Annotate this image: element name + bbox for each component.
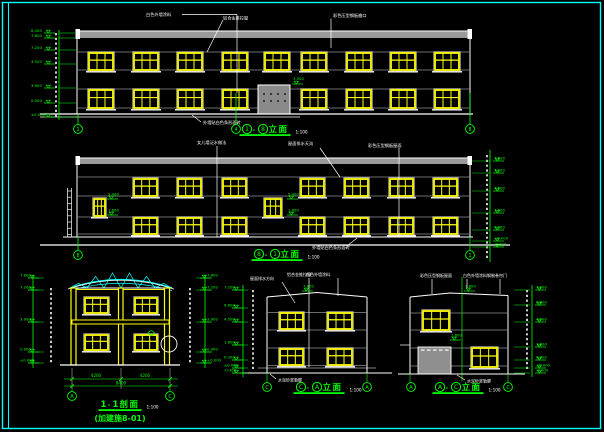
- window: [175, 89, 205, 111]
- door-leaf: [418, 347, 451, 374]
- level-flag: 7.200: [493, 168, 505, 173]
- callout-label: 白色外墙涂料: [306, 271, 330, 277]
- level-flag: 7.800: [464, 283, 476, 291]
- window-frame: [85, 298, 108, 313]
- grid-bubble-label: 8: [468, 127, 471, 133]
- door-slat-mark: [439, 350, 443, 351]
- level-flag: 6.600: [224, 303, 243, 308]
- callout-label: 铝合金推拉窗: [223, 15, 248, 22]
- note-leader: [270, 374, 276, 379]
- level-value: 1.800: [536, 342, 547, 347]
- window: [82, 334, 111, 353]
- level-flag: -0.300: [493, 242, 507, 247]
- window: [420, 310, 452, 333]
- door-slat-mark: [433, 350, 437, 351]
- door-leaf: [258, 85, 290, 114]
- grid-bubble: 8: [466, 125, 475, 134]
- roof-line: [410, 293, 508, 297]
- window-frame: [85, 335, 108, 350]
- level-triangle: [202, 287, 206, 290]
- callout-label: 屋面排水方向: [250, 275, 274, 281]
- roof-line: [267, 293, 367, 298]
- window: [86, 52, 116, 73]
- window: [131, 178, 160, 199]
- back-elevation-view: 5.4001.8005.4001.800女儿墙泛水做法屋面排水天沟彩色压型钢板屋…: [40, 139, 510, 262]
- level-triangle: [202, 319, 206, 322]
- level-value: 3.000: [293, 76, 304, 81]
- level-value: 3.900: [207, 317, 218, 322]
- level-triangle: [289, 196, 293, 199]
- window-frame: [265, 199, 281, 216]
- window-frame: [280, 349, 303, 365]
- level-flag: 4.500: [535, 317, 547, 322]
- window: [132, 334, 160, 353]
- level-flag: ±0.000: [20, 358, 39, 363]
- window-frame: [280, 313, 303, 329]
- level-triangle: [109, 212, 113, 215]
- title-char: 立: [323, 382, 332, 393]
- window-frame: [89, 53, 113, 70]
- grid-bubble: C: [166, 392, 175, 401]
- window-frame: [134, 90, 158, 108]
- window-frame: [434, 218, 457, 234]
- level-value: 1.800: [451, 332, 462, 337]
- level-flag: 4.500: [493, 186, 505, 191]
- level-triangle: [46, 100, 50, 103]
- column: [165, 288, 170, 365]
- callout-label: 白色外墙涂料: [146, 11, 172, 18]
- window-frame: [223, 53, 247, 70]
- level-triangle: [294, 81, 298, 84]
- title-scale: 1:100: [308, 255, 320, 260]
- level-triangle: [202, 360, 206, 363]
- level-flag: 3.000: [292, 76, 304, 84]
- window: [387, 178, 416, 199]
- title-underline: [294, 392, 345, 394]
- window: [342, 178, 371, 199]
- level-triangle: [452, 337, 456, 340]
- level-value: 7.800: [303, 283, 314, 288]
- view-title: C-A立面1:100: [294, 382, 362, 394]
- level-value: 6.600: [536, 300, 547, 305]
- window-frame: [391, 53, 415, 70]
- title-char: 1: [113, 400, 119, 410]
- callout-leader: [282, 282, 295, 303]
- window-frame: [345, 179, 368, 196]
- grid-bubble: 1: [74, 125, 83, 134]
- title-underline: [99, 409, 142, 411]
- level-value: 7.800: [20, 273, 31, 278]
- band-endcap: [76, 156, 81, 165]
- level-flag: 7.800: [493, 156, 505, 161]
- level-value: 1.800: [224, 340, 235, 345]
- window-frame: [265, 53, 289, 70]
- level-value: 7.200: [494, 168, 505, 173]
- level-value: 5.400: [108, 191, 119, 196]
- level-flag: 7.200: [20, 285, 39, 290]
- floor-slab: [72, 320, 169, 324]
- level-value: 1.800: [288, 207, 299, 212]
- window-frame: [345, 218, 368, 234]
- window: [387, 217, 416, 237]
- grid-bubble: C: [263, 383, 272, 392]
- grid-bubble: A: [407, 383, 416, 392]
- level-flag: 6.600: [535, 300, 547, 305]
- grid-bubble: 4: [232, 125, 241, 134]
- window: [432, 52, 462, 73]
- window: [325, 348, 355, 368]
- level-flag: 3.900: [200, 317, 218, 322]
- window-frame: [135, 298, 157, 313]
- title-bubble-char: 1: [245, 126, 249, 133]
- window: [91, 198, 108, 219]
- level-flag: -0.300: [224, 368, 243, 373]
- level-value: 4.500: [224, 317, 235, 322]
- window: [277, 348, 306, 368]
- level-flag: 0.300: [493, 225, 505, 230]
- window-frame: [302, 90, 326, 108]
- window: [220, 52, 250, 73]
- window: [220, 89, 250, 111]
- door-slat-mark: [421, 350, 425, 351]
- window: [432, 89, 462, 111]
- window-frame: [223, 179, 246, 196]
- window: [131, 89, 161, 111]
- dim-total: 8400: [116, 381, 127, 386]
- level-flag: 7.200: [535, 285, 547, 290]
- window-frame: [178, 90, 202, 108]
- level-flag: 1.800: [224, 340, 243, 345]
- window: [175, 52, 205, 73]
- level-flag: 7.800: [302, 283, 314, 291]
- window-frame: [178, 53, 202, 70]
- column: [119, 288, 124, 365]
- door-slat-mark: [445, 350, 449, 351]
- grid-bubble-label: 1: [468, 253, 471, 259]
- level-value: 4.500: [494, 186, 505, 191]
- window: [175, 217, 204, 237]
- title-char: -: [446, 384, 449, 392]
- window: [344, 89, 374, 111]
- title-underline: [252, 259, 303, 261]
- window-frame: [301, 218, 324, 234]
- note-leader: [457, 375, 465, 380]
- level-flag: 7.200: [224, 285, 243, 290]
- window-frame: [423, 311, 449, 330]
- grid-bubble: 1: [466, 251, 475, 260]
- window-frame: [434, 179, 457, 196]
- title-char: 面: [130, 400, 139, 410]
- title-char: 面: [333, 383, 342, 393]
- title-bubble-char: 8: [257, 251, 261, 258]
- window: [262, 52, 292, 73]
- level-flag: 7.800: [31, 33, 55, 38]
- level-flag: 1.800: [450, 332, 462, 340]
- title-underline: [240, 134, 291, 136]
- level-flag: 0.300: [224, 355, 243, 360]
- level-flag: -0.300: [535, 368, 549, 373]
- level-triangle: [202, 349, 206, 352]
- level-value: 0.900: [207, 347, 218, 352]
- window: [342, 217, 371, 237]
- level-triangle: [46, 61, 50, 64]
- level-value: 0.300: [494, 225, 505, 230]
- level-flag: 1.800: [535, 342, 547, 347]
- window: [82, 297, 111, 316]
- level-value: 7.800: [31, 33, 42, 38]
- title-char: 面: [279, 125, 288, 135]
- door-dot: [284, 100, 286, 102]
- level-value: -0.300: [536, 368, 549, 373]
- window: [299, 89, 329, 111]
- title-char: 立: [281, 249, 290, 260]
- window: [131, 52, 161, 73]
- level-triangle: [46, 35, 50, 38]
- level-value: 7.800: [494, 156, 505, 161]
- window: [388, 89, 418, 111]
- window-frame: [301, 179, 324, 196]
- callout-label: 女儿墙泛水做法: [197, 139, 226, 146]
- entrance-door: [258, 85, 290, 114]
- level-triangle: [46, 30, 50, 33]
- window: [431, 178, 460, 199]
- level-triangle: [466, 288, 470, 291]
- window-frame: [89, 90, 113, 108]
- grid-bubble: C: [504, 383, 513, 392]
- callout-label: 钢制卷帘门: [487, 272, 507, 278]
- window: [469, 347, 500, 370]
- level-value: ±0.000: [494, 236, 509, 241]
- level-value: ±0.000: [31, 112, 46, 117]
- title-underline: [433, 392, 484, 394]
- grid-bubble: 8: [74, 251, 83, 260]
- window: [277, 312, 306, 332]
- grid-bubble-label: 8: [76, 253, 79, 259]
- level-flag: 3.900: [31, 83, 55, 88]
- level-flag: 0.900: [31, 98, 55, 103]
- wall-ladder: [68, 188, 72, 237]
- grid-bubble: A: [363, 383, 372, 392]
- window-frame: [435, 53, 459, 70]
- title-char: -: [253, 126, 256, 134]
- window-frame: [390, 218, 413, 234]
- title-bubble-char: C: [299, 384, 303, 391]
- level-flag: 7.800: [20, 273, 39, 278]
- title-scale: 1:100: [489, 388, 501, 393]
- level-flag: 0.900: [20, 347, 39, 352]
- level-flag: ±0.000: [493, 236, 509, 241]
- level-value: ±0.000: [207, 358, 222, 363]
- window: [262, 198, 284, 219]
- level-flag: 1.800: [493, 208, 505, 213]
- level-value: 3.900: [31, 83, 42, 88]
- window-frame: [135, 335, 157, 350]
- title-char: 立: [269, 124, 278, 135]
- level-value: 3.900: [20, 317, 31, 322]
- level-flag: 0.300: [535, 355, 547, 360]
- window: [131, 217, 160, 237]
- dim-value: 4200: [140, 373, 151, 378]
- window: [175, 178, 204, 199]
- view-subtitle: (加建施8-01): [94, 413, 145, 423]
- level-flag: 7.200: [200, 285, 218, 290]
- bottom-note: 外墙贴白色条形面砖: [312, 244, 350, 251]
- level-value: 0.900: [20, 347, 31, 352]
- level-value: 0.300: [224, 355, 235, 360]
- window: [132, 297, 160, 316]
- level-value: ±0.000: [20, 358, 35, 363]
- window-frame: [134, 179, 157, 196]
- level-value: 6.600: [224, 303, 235, 308]
- title-char: -: [265, 251, 268, 259]
- title-char: -: [108, 401, 111, 409]
- bottom-note: 水泥砂浆勒脚: [278, 377, 302, 383]
- level-value: 4.500: [536, 317, 547, 322]
- window-frame: [435, 90, 459, 108]
- title-char: 剖: [120, 399, 129, 410]
- level-flag: 4.500: [224, 317, 243, 322]
- note-leader: [192, 115, 201, 122]
- level-triangle: [46, 47, 50, 50]
- title-scale: 1:100: [350, 388, 362, 393]
- title-char: -: [307, 384, 310, 392]
- level-value: 7.200: [20, 285, 31, 290]
- view-title: 1-8立面1:100: [240, 124, 308, 136]
- front-elevation-view: 8.4007.8007.2004.5003.9000.900±0.0003.00…: [31, 11, 474, 136]
- window: [220, 178, 249, 199]
- window-frame: [328, 349, 352, 365]
- window-frame: [223, 90, 247, 108]
- callout-label: 彩色压型钢板屋面: [420, 272, 452, 278]
- level-flag: 1.800: [107, 207, 119, 215]
- title-bubble-char: 8: [261, 126, 265, 133]
- door-dot: [263, 93, 265, 95]
- level-flag: 5.400: [107, 191, 119, 199]
- level-flag: 0.900: [200, 347, 218, 352]
- column: [71, 288, 76, 365]
- level-triangle: [202, 275, 206, 278]
- level-value: 7.200: [224, 285, 235, 290]
- window-frame: [178, 218, 201, 234]
- title-char: 面: [291, 250, 300, 260]
- window-frame: [223, 218, 246, 234]
- callout-label: 屋面排水天沟: [288, 140, 313, 147]
- window: [388, 52, 418, 73]
- grid-bubble-label: 1: [76, 127, 79, 133]
- title-char: 1: [101, 400, 107, 410]
- window: [344, 52, 374, 73]
- grid-bubble-label: 4: [234, 127, 237, 133]
- window-frame: [347, 90, 371, 108]
- door-slat-mark: [427, 350, 431, 351]
- level-value: -0.300: [224, 368, 237, 373]
- door-dot: [270, 93, 272, 95]
- level-value: 7.200: [207, 285, 218, 290]
- window: [325, 312, 355, 332]
- window: [298, 178, 327, 199]
- level-flag: 7.200: [31, 45, 55, 50]
- window-frame: [178, 179, 201, 196]
- window-frame: [134, 218, 157, 234]
- callout-label: 白色外墙涂料: [463, 272, 487, 278]
- view-title: 1-1剖面1:100: [99, 399, 159, 411]
- window-frame: [390, 179, 413, 196]
- left-side-elevation-view: 7.800屋面排水方向铝合金推拉窗白色外墙涂料7.2006.6004.5001.…: [224, 271, 392, 394]
- window-frame: [94, 199, 105, 216]
- level-flag: 5.400: [287, 191, 299, 199]
- section-view: 7.8007.2003.9000.900±0.0007.8007.2003.90…: [20, 273, 222, 423]
- parapet-band: [78, 31, 468, 38]
- cad-sheet: 8.4007.8007.2004.5003.9000.900±0.0003.00…: [0, 0, 604, 432]
- level-value: 7.200: [536, 285, 547, 290]
- window-frame: [328, 313, 352, 329]
- door-dot: [270, 100, 272, 102]
- level-value: 4.500: [31, 59, 42, 64]
- level-value: 5.400: [288, 191, 299, 196]
- window: [299, 52, 329, 73]
- title-scale: 1:100: [296, 130, 308, 135]
- level-value: 0.900: [31, 98, 42, 103]
- title-char: 面: [472, 383, 481, 393]
- title-bubble-char: 1: [273, 251, 277, 258]
- rollup-door: [418, 347, 451, 374]
- view-title: A-C立面1:100: [433, 382, 501, 394]
- level-flag: 4.500: [31, 59, 55, 64]
- level-flag: ±0.000: [200, 358, 222, 363]
- parapet-band: [78, 158, 468, 164]
- window: [86, 89, 116, 111]
- level-triangle: [46, 85, 50, 88]
- title-scale: 1:100: [147, 405, 159, 410]
- callout-label: 彩色压型钢板檐口: [333, 12, 367, 19]
- window: [220, 217, 249, 237]
- view-title: 8-1立面1:100: [252, 249, 320, 261]
- level-value: 0.300: [536, 355, 547, 360]
- drawing-canvas[interactable]: 8.4007.8007.2004.5003.9000.900±0.0003.00…: [0, 0, 604, 432]
- door-dot: [277, 100, 279, 102]
- level-value: 1.800: [494, 208, 505, 213]
- window-frame: [472, 348, 497, 367]
- title-bubble-char: C: [454, 384, 458, 391]
- window: [298, 217, 327, 237]
- window-frame: [391, 90, 415, 108]
- level-triangle: [46, 114, 50, 117]
- level-triangle: [289, 212, 293, 215]
- door-dot: [277, 93, 279, 95]
- title-char: 立: [462, 382, 471, 393]
- window-frame: [134, 53, 158, 70]
- window-frame: [302, 53, 326, 70]
- window-frame: [347, 53, 371, 70]
- level-flag: 3.900: [20, 317, 39, 322]
- level-triangle: [109, 196, 113, 199]
- level-value: 1.800: [108, 207, 119, 212]
- door-dot: [263, 100, 265, 102]
- level-value: -0.300: [494, 242, 507, 247]
- right-side-elevation-view: 7.8001.800彩色压型钢板屋面白色外墙涂料钢制卷帘门7.2006.6004…: [398, 272, 551, 394]
- window: [431, 217, 460, 237]
- level-flag: 7.800: [200, 273, 218, 278]
- door-dot: [284, 93, 286, 95]
- grid-bubble: A: [68, 392, 77, 401]
- level-triangle: [304, 288, 308, 291]
- level-flag: 1.800: [287, 207, 299, 215]
- callout-label: 彩色压型钢板屋面: [368, 142, 402, 149]
- dim-value: 4200: [91, 373, 102, 378]
- level-value: 7.200: [31, 45, 42, 50]
- level-value: 7.800: [207, 273, 218, 278]
